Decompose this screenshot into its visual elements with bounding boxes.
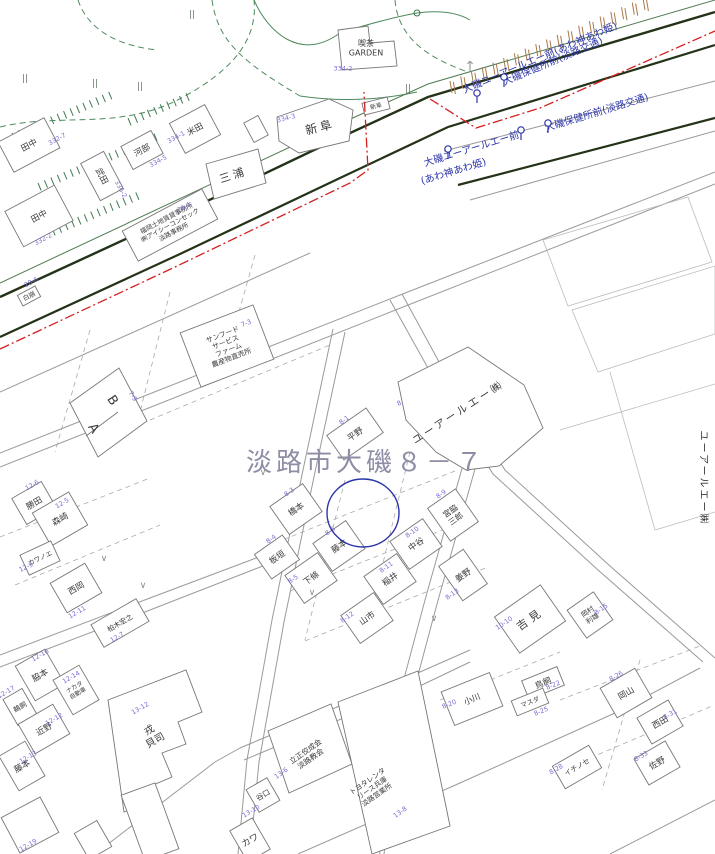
direction-arrow: ↑ <box>464 59 476 75</box>
bus-stop-label: 大磯保健所前(淡路交通) <box>500 34 604 88</box>
map-canvas[interactable]: ||||||||||∨∨∨∨∨↑ 大磯ユーアールエー前(あわ神あわ姫)大磯保健所… <box>0 0 715 854</box>
building-label: ユーアールエー㈱ <box>698 431 710 526</box>
bus-stop-label: 大磯保健所前(淡路交通) <box>543 90 650 134</box>
highlight-circle <box>327 479 399 547</box>
vegetation-contours <box>0 0 470 127</box>
grass-mark: ∨ <box>101 554 108 564</box>
paddy-field-mark: || <box>22 74 28 84</box>
grass-mark: ∨ <box>140 581 147 591</box>
lot-number: 334-2 <box>334 64 353 72</box>
paddy-field-mark: || <box>405 84 411 94</box>
map-title: 淡路市大磯８－７ <box>246 448 486 478</box>
paddy-field-mark: || <box>189 10 195 20</box>
lot-number: 28-6 <box>23 275 40 289</box>
bus-stop-icon <box>474 90 480 103</box>
bus-stop-label: 大磯ユーアールエー前(あわ神あわ姫) <box>460 19 619 96</box>
grass-mark: ∨ <box>431 614 438 624</box>
paddy-field-mark: || <box>92 79 98 89</box>
lot-number: 13-10 <box>241 803 261 819</box>
paddy-field-mark: || <box>137 82 143 92</box>
grass-mark: ∨ <box>309 588 316 598</box>
